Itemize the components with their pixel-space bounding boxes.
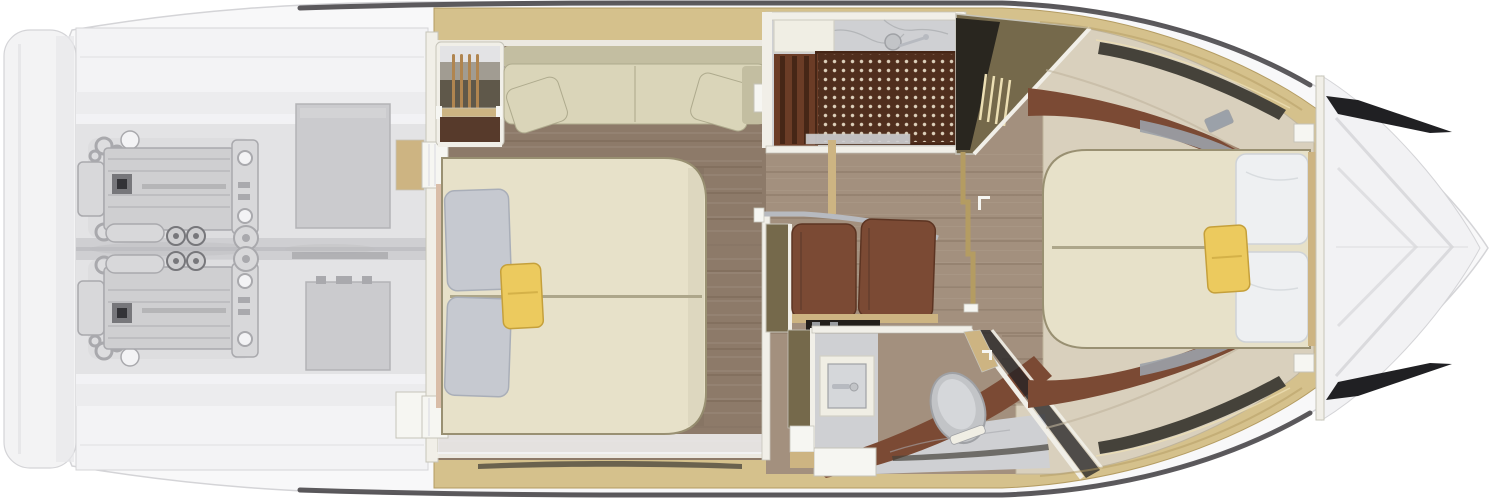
- step-line: [428, 398, 430, 436]
- sink-vanity: [820, 356, 874, 416]
- corridor-settee: [754, 208, 938, 460]
- shower-bottom-wall: [766, 146, 966, 153]
- yellow-cushion: [500, 263, 543, 329]
- bench-slat: [804, 56, 809, 144]
- grate-frame: [816, 52, 958, 144]
- hanging-wardrobe: [436, 42, 504, 147]
- shower-wand: [885, 34, 901, 50]
- duvet-seam: [450, 295, 702, 298]
- jamb-cap: [964, 304, 978, 312]
- door-handle: [989, 350, 992, 360]
- forward-island-bed: [1043, 150, 1318, 348]
- floorplan-detail: [0, 0, 1500, 498]
- shower-room: [762, 12, 966, 214]
- shower-top-wall: [766, 12, 966, 20]
- vanity-lower-box: [814, 448, 876, 476]
- glass-door-jamb: [828, 140, 836, 214]
- hanger: [468, 54, 471, 110]
- shower-counter: [774, 20, 834, 52]
- master-double-bed: [436, 158, 706, 434]
- deck-vent: [1326, 363, 1452, 400]
- wardrobe-sill: [438, 108, 500, 117]
- head-side-cabinet: [788, 330, 812, 428]
- shower-mixer: [923, 34, 929, 40]
- forward-bulkhead: [1316, 76, 1324, 420]
- sofa: [504, 46, 770, 135]
- wardrobe-floor: [440, 117, 500, 142]
- wardrobe-bottom-edge: [438, 142, 502, 147]
- rail-bracket: [754, 208, 764, 222]
- yellow-cushion: [1204, 225, 1251, 294]
- hanger: [452, 54, 455, 110]
- settee-side-panel: [766, 224, 790, 332]
- cushion-crease: [868, 228, 870, 310]
- sofa-seam: [634, 66, 636, 122]
- head-top-wall: [812, 326, 972, 333]
- pillow: [444, 297, 511, 397]
- wall-bracket: [978, 196, 981, 210]
- step-line: [434, 144, 436, 186]
- master-cabin: [396, 32, 770, 462]
- hull-window-slit: [478, 461, 742, 469]
- drain: [850, 383, 858, 391]
- hull-side-strip: [438, 434, 764, 454]
- marble-vein: [884, 20, 948, 34]
- forward-cabin: [1028, 70, 1324, 428]
- shelf-gold: [790, 452, 814, 468]
- faucet: [832, 384, 850, 389]
- wall-hatch: [1294, 124, 1314, 142]
- cushion-crease: [800, 232, 802, 310]
- shower-left-wall: [762, 12, 772, 148]
- bench-slat: [780, 56, 785, 144]
- bow-deck-details: [1326, 96, 1468, 400]
- aft-door-locker-gold: [396, 140, 424, 190]
- shower-threshold: [806, 134, 910, 144]
- remote-object: [1204, 109, 1233, 132]
- forward-wardrobe: [956, 14, 1090, 154]
- yacht-floorplan: [0, 0, 1500, 498]
- hanger: [476, 54, 479, 110]
- wall-hatch: [1294, 354, 1314, 372]
- bench-slat: [792, 56, 797, 144]
- pillow: [1236, 154, 1308, 244]
- shelf-white: [790, 426, 814, 452]
- step-line: [428, 144, 430, 186]
- shower-wand-handle: [899, 38, 924, 46]
- hanger: [460, 54, 463, 110]
- forward-door-jamb: [963, 152, 973, 308]
